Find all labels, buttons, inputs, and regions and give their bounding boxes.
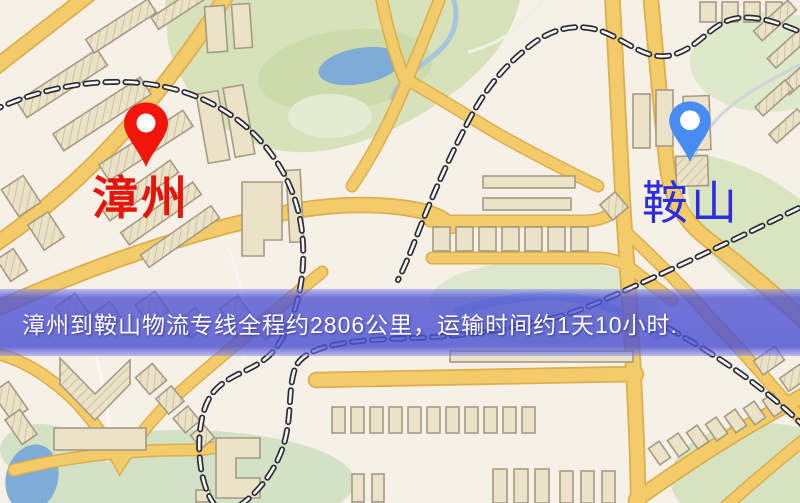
pin-hole xyxy=(137,114,156,133)
location-pin-icon xyxy=(121,100,171,170)
pin-hole xyxy=(680,110,700,130)
map-screenshot: 漳州 鞍山 漳州到鞍山物流专线全程约2806公里，运输时间约1天10小时. xyxy=(0,0,800,503)
destination-pin xyxy=(666,99,714,165)
pin-body xyxy=(124,103,168,168)
route-info-text: 漳州到鞍山物流专线全程约2806公里，运输时间约1天10小时. xyxy=(0,306,678,340)
location-pin-icon xyxy=(666,99,714,165)
origin-pin xyxy=(121,100,171,170)
destination-city-label: 鞍山 xyxy=(642,181,740,227)
route-info-banner: 漳州到鞍山物流专线全程约2806公里，运输时间约1天10小时. xyxy=(0,289,800,356)
map-background xyxy=(0,0,800,503)
origin-city-label: 漳州 xyxy=(92,176,190,222)
